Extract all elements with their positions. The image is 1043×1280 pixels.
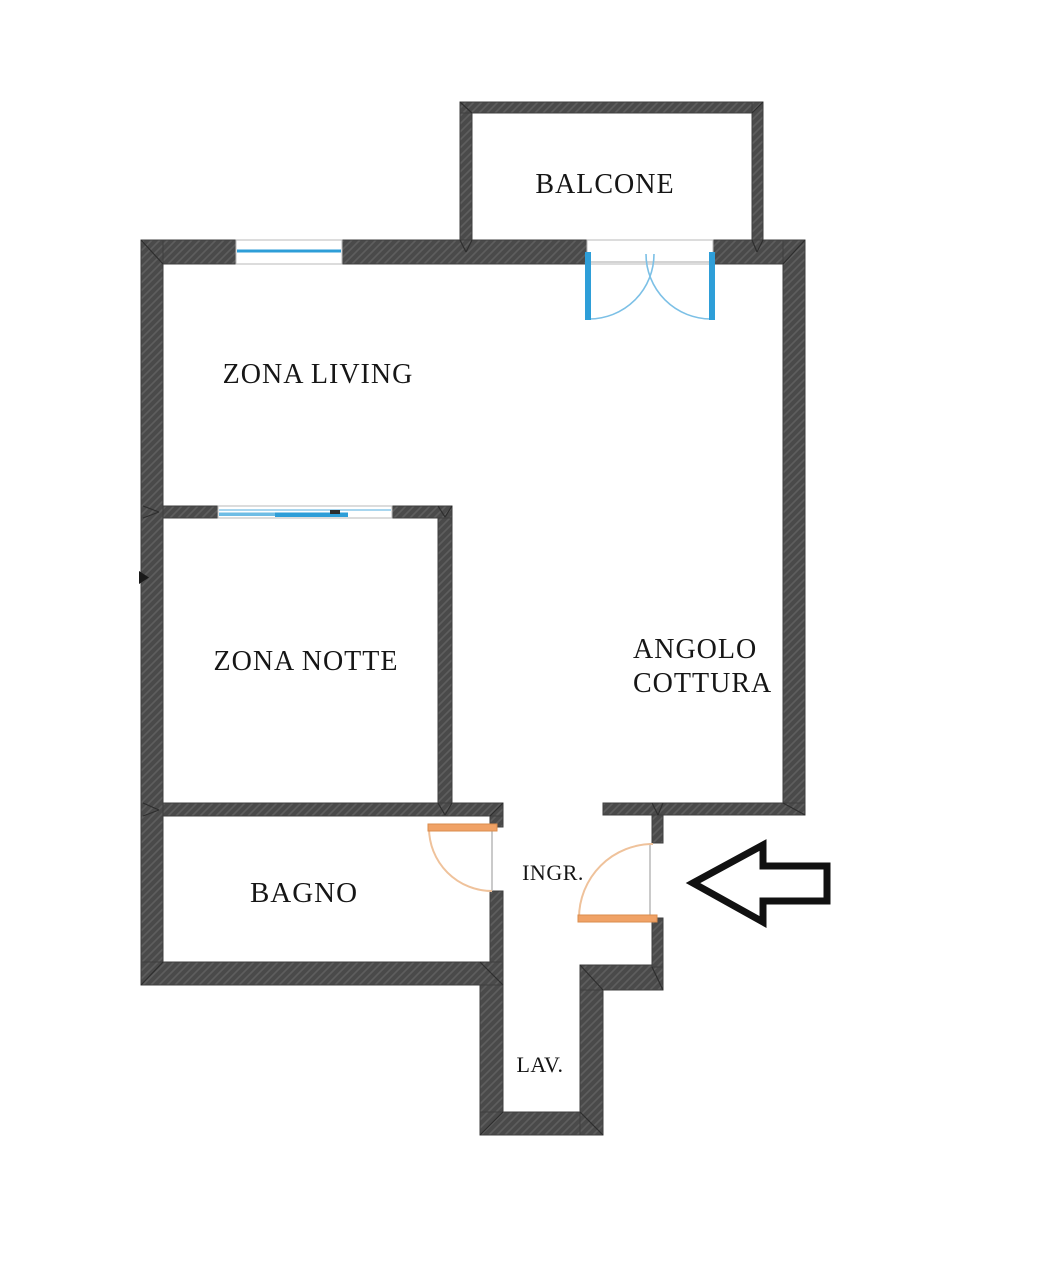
room-label-cottura: COTTURA — [633, 668, 772, 699]
bagno-right-wall-lower — [490, 891, 503, 962]
notte-window-handle — [330, 510, 340, 514]
room-label-ingresso: INGR. — [522, 860, 584, 885]
balcony-top-wall — [460, 102, 763, 113]
room-label-zona-notte: ZONA NOTTE — [214, 646, 399, 677]
living-notte-wall-left — [163, 506, 218, 518]
kitchen-bottom-wall — [603, 803, 805, 815]
living-notte-wall-right — [392, 506, 452, 518]
floor-plan-drawing: BALCONEZONA LIVINGZONA NOTTEANGOLOCOTTUR… — [0, 0, 1043, 1280]
room-label-zona-living: ZONA LIVING — [223, 359, 414, 390]
balcony-right-wall — [752, 102, 763, 240]
balcony-door-opening — [587, 240, 713, 264]
floor-plan-page: BALCONEZONA LIVINGZONA NOTTEANGOLOCOTTUR… — [0, 0, 1043, 1280]
bagno-bottom-wall — [141, 962, 503, 985]
entrance-door-leaf — [578, 915, 657, 922]
lav-right-wall — [580, 990, 603, 1135]
balcony-door-right-leaf — [709, 252, 715, 320]
balcony-left-wall — [460, 102, 472, 240]
notte-right-wall — [438, 518, 452, 803]
room-label-balcone: BALCONE — [535, 169, 674, 200]
main-right-wall — [783, 240, 805, 815]
main-top-wall-middle-segment — [342, 240, 587, 264]
room-label-lavanderia: LAV. — [516, 1052, 563, 1077]
room-label-angolo: ANGOLO — [633, 634, 757, 665]
entrance-wall-lower — [652, 918, 663, 967]
main-left-wall — [141, 240, 163, 985]
bagno-top-wall — [163, 803, 503, 816]
ingresso-step-wall — [580, 965, 663, 990]
room-label-bagno: BAGNO — [250, 877, 358, 909]
entrance-wall-stub — [652, 815, 663, 843]
bagno-door-leaf — [428, 824, 497, 831]
balcony-door-left-leaf — [585, 252, 591, 320]
